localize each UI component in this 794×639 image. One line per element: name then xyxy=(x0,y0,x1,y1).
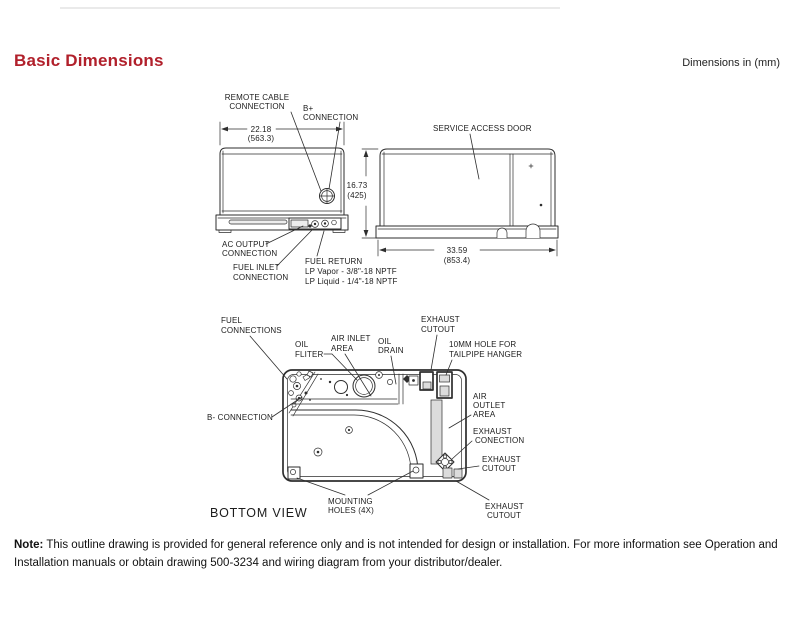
fitting xyxy=(332,220,337,225)
footnote-text: This outline drawing is provided for gen… xyxy=(14,539,778,569)
b-minus-connection-label: B- CONNECTION xyxy=(207,413,273,422)
oil-filter xyxy=(353,375,375,397)
exhaust-cutout-top-inner xyxy=(423,382,431,389)
exhaust-connection-label: CONECTION xyxy=(475,436,524,445)
width-mm: (563.3) xyxy=(248,134,275,143)
side-enclosure-outline xyxy=(380,149,555,226)
footnote: Note:This outline drawing is provided fo… xyxy=(14,537,788,573)
exhaust-cutout-top-label: CUTOUT xyxy=(421,325,455,334)
door-screw xyxy=(540,204,543,207)
service-access-door-label: SERVICE ACCESS DOOR xyxy=(433,124,532,133)
dimension-arrow-right xyxy=(549,248,556,253)
fuel-inlet-fitting xyxy=(314,223,316,225)
exhaust-cutout-right-label: EXHAUST xyxy=(482,455,521,464)
fuel-inlet-connection-label: CONNECTION xyxy=(233,273,288,282)
service-door-leader xyxy=(470,134,479,179)
flange-bolt xyxy=(438,460,441,463)
ac-output-connection-label: CONNECTION xyxy=(222,249,277,258)
fitting xyxy=(305,392,308,395)
oil-drain-port xyxy=(335,381,348,394)
mounting-holes-label: MOUNTING xyxy=(328,497,373,506)
height-inches: 16.73 xyxy=(347,181,368,190)
small-port xyxy=(387,379,392,384)
fitting xyxy=(320,378,322,380)
fitting xyxy=(296,385,299,388)
dimension-lines xyxy=(378,240,557,256)
service-door-edge xyxy=(510,154,513,226)
exhaust-cutout-right-label: CUTOUT xyxy=(482,464,516,473)
oil-filter-label: OIL xyxy=(295,340,309,349)
small-cutout-hole xyxy=(412,379,415,382)
length-dimension: 33.59 (853.4) xyxy=(378,240,557,265)
length-inches: 33.59 xyxy=(447,246,468,255)
air-outlet-area-label: AREA xyxy=(473,410,496,419)
height-mm: (425) xyxy=(347,191,367,200)
oil-drain-label: OIL xyxy=(378,337,392,346)
exhaust-cutout-right xyxy=(454,469,462,478)
ac-output-receptacle xyxy=(291,220,308,227)
b-plus-connection-label: CONNECTION xyxy=(303,113,358,122)
fitting xyxy=(329,381,331,383)
pan-drain xyxy=(348,429,350,431)
small-port xyxy=(346,394,348,396)
exhaust-cutout-top-label: EXHAUST xyxy=(421,315,460,324)
enclosure-outline xyxy=(220,148,344,215)
b-plus-connection-label: B+ xyxy=(303,104,313,113)
base-cutout-small xyxy=(497,228,507,238)
oil-filter-label: FLITER xyxy=(295,350,324,359)
dimension-arrow-left xyxy=(221,127,228,132)
fuel-return-lp-liquid-label: LP Liquid - 1/4"-18 NPTF xyxy=(305,277,398,286)
fuel-inlet-connection-label: FUEL INLET xyxy=(233,263,280,272)
side-view: SERVICE ACCESS DOOR 16.73 (425) xyxy=(347,124,558,265)
front-view-leader-lines xyxy=(266,112,340,266)
fuel-connections-label: FUEL xyxy=(221,316,242,325)
dimension-arrow-left xyxy=(379,248,386,253)
dimension-arrow-down xyxy=(364,230,369,237)
exhaust-cutout-bottom-label: EXHAUST xyxy=(485,502,524,511)
bottom-view-caption: BOTTOM VIEW xyxy=(210,506,307,520)
flange-bolt xyxy=(449,460,452,463)
side-enclosure-inner-lines xyxy=(382,152,553,226)
base-cutout-large xyxy=(526,224,540,238)
tailpipe-hanger-hole-label: TAILPIPE HANGER xyxy=(449,350,522,359)
footnote-label: Note: xyxy=(14,539,43,551)
air-inlet-area-label: AREA xyxy=(331,344,354,353)
tailpipe-hanger-hole-inner xyxy=(440,375,450,382)
air-inlet-area-label: AIR INLET xyxy=(331,334,371,343)
mounting-hole xyxy=(290,469,295,474)
enclosure-inner-lines xyxy=(222,151,342,213)
ac-output-connection-label: AC OUTPUT xyxy=(222,240,270,249)
fuel-return-fitting xyxy=(324,222,326,224)
length-mm: (853.4) xyxy=(444,256,471,265)
exhaust-cutout-bottom xyxy=(443,468,452,478)
flange-bolt xyxy=(443,455,446,458)
dimension-arrow-up xyxy=(364,150,369,157)
mounting-hole xyxy=(413,467,419,473)
tailpipe-hanger-hole-inner xyxy=(440,386,449,396)
small-port xyxy=(378,374,380,376)
exhaust-connection-label: EXHAUST xyxy=(473,427,512,436)
dimension-lines xyxy=(220,122,344,145)
exhaust-cutout-bottom-label: CUTOUT xyxy=(487,511,521,520)
fitting xyxy=(309,399,311,401)
remote-cable-connection-label: CONNECTION xyxy=(229,102,284,111)
oil-drain-label: DRAIN xyxy=(378,346,404,355)
width-dimension: 22.18 (563.3) xyxy=(220,122,344,145)
pan-drain xyxy=(317,451,320,454)
front-view: REMOTE CABLE CONNECTION B+ CONNECTION 22… xyxy=(216,93,398,286)
height-dimension: 16.73 (425) xyxy=(347,149,378,238)
spec-sheet-page: Basic Dimensions Dimensions in (mm) REMO… xyxy=(0,0,794,639)
fitting xyxy=(290,376,296,382)
fuel-connections-label: CONNECTIONS xyxy=(221,326,282,335)
tailpipe-hanger-hole-label: 10MM HOLE FOR xyxy=(449,340,516,349)
air-outlet-area xyxy=(431,400,442,464)
air-outlet-area-label: AIR xyxy=(473,392,487,401)
fitting xyxy=(289,391,294,396)
fitting xyxy=(308,224,311,227)
fuel-return-label: FUEL RETURN xyxy=(305,257,362,266)
fitting xyxy=(297,372,301,376)
remote-cable-connection-label: REMOTE CABLE xyxy=(225,93,289,102)
vent-slot xyxy=(229,220,287,224)
bottom-view: FUEL CONNECTIONS OIL FLITER AIR INLET AR… xyxy=(207,315,524,520)
mounting-holes-label: HOLES (4X) xyxy=(328,506,374,515)
door-screw xyxy=(529,164,533,168)
fuel-return-lp-vapor-label: LP Vapor - 3/8"-18 NPTF xyxy=(305,267,397,276)
width-inches: 22.18 xyxy=(251,125,272,134)
air-outlet-area-label: OUTLET xyxy=(473,401,505,410)
exhaust-port xyxy=(441,458,448,465)
